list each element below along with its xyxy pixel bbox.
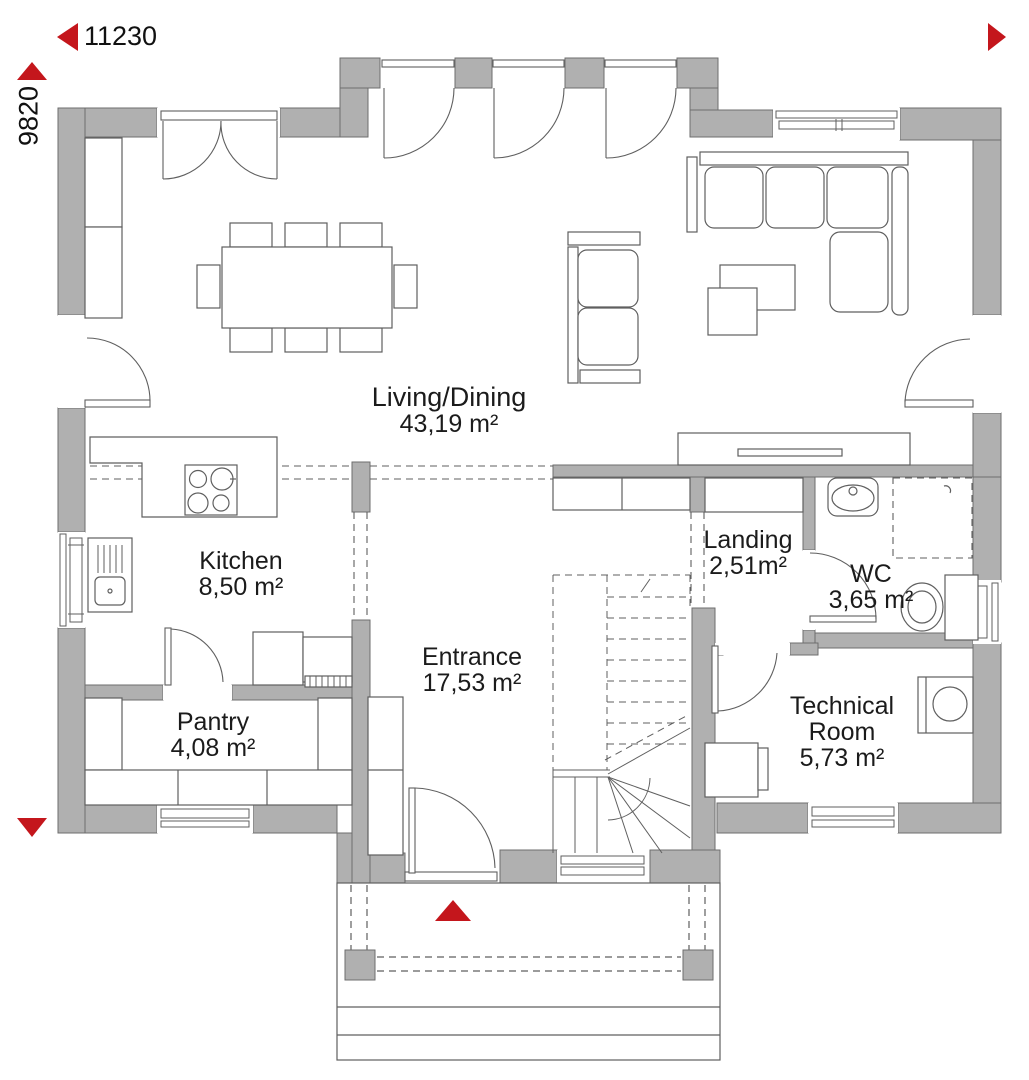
floor-plan-drawing [0, 0, 1029, 1080]
dimension-width-label: 11230 [84, 21, 157, 52]
room-area: 4,08 m² [171, 735, 256, 761]
dining-table [222, 247, 392, 328]
kitchen-sink [88, 538, 132, 612]
dining-chair [394, 265, 417, 308]
dining-chair [230, 328, 272, 352]
window-kitchen [58, 532, 85, 628]
room-label-pantry: Pantry 4,08 m² [171, 709, 256, 761]
dining-chair [197, 265, 220, 308]
room-name: Pantry [171, 709, 256, 735]
side-table [687, 157, 697, 232]
porch-column [683, 950, 713, 980]
dining-chair [340, 223, 382, 247]
entrance-wardrobe [368, 697, 403, 855]
room-name: WC [829, 561, 914, 587]
right-terrace-door [905, 339, 973, 407]
stove [185, 465, 237, 515]
room-name: Landing [704, 527, 793, 553]
room-name: Technical Room [772, 693, 912, 745]
shower [893, 478, 972, 558]
room-area: 2,51m² [704, 553, 793, 579]
window-living-top [773, 108, 900, 140]
left-terrace-door [85, 338, 150, 407]
front-door [405, 788, 497, 881]
room-area: 5,73 m² [772, 745, 912, 771]
technical-room-door [712, 646, 777, 713]
sideboard-cabinet [85, 138, 122, 318]
room-label-living: Living/Dining 43,19 m² [372, 383, 527, 437]
window-technical [808, 803, 898, 833]
room-label-wc: WC 3,65 m² [829, 561, 914, 613]
dining-chair [285, 328, 327, 352]
technical-appliance [705, 743, 768, 797]
room-label-kitchen: Kitchen 8,50 m² [199, 548, 284, 600]
dimension-height-label: 9820 [14, 86, 45, 146]
room-label-technical: Technical Room 5,73 m² [772, 693, 912, 771]
bay-terrace-doors [382, 60, 676, 158]
kitchen-door [165, 628, 223, 685]
shower-drain-icon [944, 486, 951, 493]
dimension-arrow-up-icon [17, 62, 47, 80]
dimension-arrow-right-icon [988, 23, 1006, 51]
room-area: 3,65 m² [829, 587, 914, 613]
stairs [553, 575, 690, 853]
porch [337, 883, 720, 1060]
hall-closet [553, 478, 690, 510]
window-pantry [157, 805, 253, 833]
dining-chair [285, 223, 327, 247]
dining-chair [340, 328, 382, 352]
room-label-landing: Landing 2,51m² [704, 527, 793, 579]
washing-machine [918, 677, 973, 733]
room-label-entrance: Entrance 17,53 m² [422, 644, 522, 696]
room-area: 8,50 m² [199, 574, 284, 600]
room-name: Entrance [422, 644, 522, 670]
room-area: 43,19 m² [372, 411, 527, 437]
dimension-arrow-down-icon [17, 818, 47, 837]
room-name: Living/Dining [372, 383, 527, 411]
stairs-upper-dashed [553, 575, 690, 770]
wc-washbasin [828, 478, 878, 516]
landing-closet [705, 478, 803, 512]
tv-sideboard [678, 433, 910, 465]
dining-chair [230, 223, 272, 247]
dimension-arrow-left-icon [57, 23, 78, 51]
floor-plan: 11230 9820 Living/Dining 43,19 m² Kitche… [0, 0, 1029, 1080]
dining-set [197, 223, 417, 352]
stairs-lower-solid [553, 579, 690, 853]
two-seat-sofa [568, 232, 640, 383]
room-area: 17,53 m² [422, 670, 522, 696]
room-name: Kitchen [199, 548, 284, 574]
window-stairwell [557, 850, 648, 883]
coffee-tables [708, 265, 795, 335]
porch-column [345, 950, 375, 980]
